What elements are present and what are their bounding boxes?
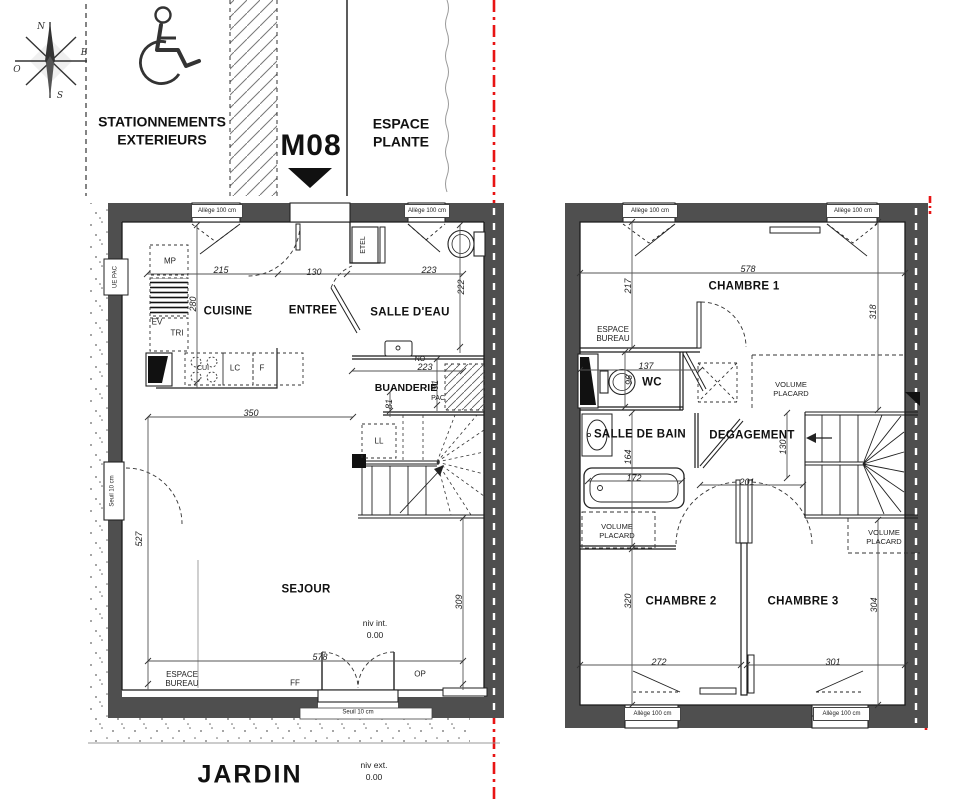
uf-allege-label-2: Allège 100 cm: [834, 208, 872, 214]
uf-window-tag-3: Allège 100 cm: [624, 707, 681, 721]
gf-dim-entree-width: 130: [306, 267, 321, 277]
uf-wc-door: [683, 352, 706, 391]
uf-duct: [578, 354, 598, 408]
gf-staircase: [352, 415, 484, 518]
exterior-level-value: 0.00: [366, 773, 383, 783]
room-label-chambre3: CHAMBRE 3: [767, 595, 838, 608]
compass-south-label: S: [57, 91, 63, 101]
gf-toilet: [448, 231, 485, 258]
hatched-strip: [230, 0, 277, 196]
parking-area-label: STATIONNEMENTS EXTERIEURS: [80, 114, 245, 149]
gf-allege-label-1: Allège 100 cm: [198, 208, 236, 214]
unit-pointer-triangle: [288, 168, 332, 188]
gf-dim-buanderie-width: 223: [417, 362, 432, 372]
compass-rose: [15, 22, 87, 98]
gf-label-etel: ETEL: [360, 236, 368, 254]
uf-sdb-door: [700, 419, 743, 468]
compass-east-label: E: [81, 48, 88, 58]
gf-washbasin: [385, 341, 412, 356]
gf-label-tri: TRI: [171, 328, 184, 337]
uf-dim-chambre2-width: 272: [651, 657, 666, 667]
uf-volume-placard-3: VOLUME PLACARD: [860, 528, 908, 546]
uf-dim-degagement-height: 130: [778, 439, 788, 454]
gf-label-ev: EV: [152, 317, 163, 326]
uf-volume-placard-2: VOLUME PLACARD: [593, 522, 641, 540]
uf-allege-label-1: Allège 100 cm: [631, 208, 669, 214]
gf-label-pac: PAC: [431, 395, 445, 403]
uf-chambre1-door: [697, 302, 746, 348]
uf-dim-wc-width: 137: [638, 361, 653, 371]
gf-dim-stair-door: 81: [384, 399, 394, 409]
gf-label-ue-pac: UE PAC: [113, 266, 120, 288]
gf-label-cui: CUI: [197, 365, 209, 373]
property-limit-red-line: [494, 0, 930, 800]
garden-label: JARDIN: [197, 761, 302, 790]
gf-dim-buanderie-height: 91: [430, 380, 440, 390]
ground-floor-plan: [88, 203, 504, 743]
gf-label-ll: LL: [375, 436, 384, 445]
gf-dim-salle-deau-height: 222: [456, 279, 466, 294]
gf-dim-sejour-height: 527: [134, 531, 144, 546]
uf-allege-label-4: Allège 100 cm: [822, 711, 860, 717]
gf-label-f: F: [260, 363, 265, 372]
uf-dim-chambre2-height: 320: [623, 593, 633, 608]
room-label-salle-deau: SALLE D'EAU: [370, 306, 450, 319]
gf-seuil-left-label: Seuil 10 cm: [110, 475, 117, 506]
room-label-entree: ENTREE: [289, 304, 337, 317]
uf-volume-placard-1: VOLUME PLACARD: [767, 380, 815, 398]
uf-window-tag-2: Allège 100 cm: [826, 204, 880, 218]
room-label-buanderie: BUANDERIE: [375, 382, 437, 394]
uf-espace-bureau-label: ESPACE BUREAU: [590, 325, 636, 343]
compass-west-label: O: [13, 65, 20, 75]
gf-dim-cuisine-height: 280: [188, 296, 198, 311]
gf-label-lc: LC: [230, 363, 240, 372]
gf-fixed-window-op: [443, 688, 487, 696]
uf-staircase: [805, 392, 920, 518]
site-wavy-line: [446, 0, 449, 192]
uf-dim-degagement-width: 201: [739, 477, 754, 487]
planted-area-label: ESPACE PLANTE: [356, 116, 446, 151]
room-label-wc: WC: [642, 376, 662, 389]
room-label-chambre2: CHAMBRE 2: [645, 595, 716, 608]
room-label-sejour: SEJOUR: [281, 583, 330, 596]
uf-window-tag-4: Allège 100 cm: [813, 707, 870, 721]
uf-window-tag-1: Allège 100 cm: [622, 204, 678, 218]
room-label-cuisine: CUISINE: [204, 305, 253, 318]
uf-window-casement-marks: [623, 224, 877, 692]
floor-plan-sheet: N E S O STATIONNEMENTS EXTERIEURS M08 ES…: [0, 0, 967, 800]
wheelchair-icon: [140, 8, 199, 84]
room-label-salle-de-bain: SALLE DE BAIN: [594, 428, 686, 441]
uf-allege-label-3: Allège 100 cm: [633, 711, 671, 717]
uf-dim-chambre3-width: 301: [825, 657, 840, 667]
gf-window-tag-1: Allège 100 cm: [191, 204, 243, 218]
compass-north-label: N: [37, 22, 45, 32]
interior-level-value: 0.00: [367, 631, 384, 641]
uf-dim-chambre1-width: 578: [740, 264, 755, 274]
exterior-level-label: niv ext.: [361, 761, 388, 771]
uf-dim-left-height: 217: [623, 278, 633, 293]
uf-attic-hatch: [698, 363, 737, 402]
gf-sink-unit: [146, 353, 172, 386]
uf-bedroom-doors: [676, 480, 812, 544]
gf-dim-sejour-width: 578: [312, 652, 327, 662]
gf-dim-mid-width: 350: [243, 408, 258, 418]
gf-window-casement-marks: [192, 224, 445, 254]
gf-espace-bureau-label: ESPACE BUREAU: [159, 670, 205, 688]
uf-central-wall: [741, 543, 747, 695]
gf-allege-label-2: Allège 100 cm: [408, 208, 446, 214]
gf-seuil-bottom-label: Seuil 10 cm: [342, 710, 373, 717]
uf-dim-wc-height: 96: [624, 375, 634, 385]
gf-dim-lines: [144, 222, 466, 690]
gf-dim-salle-deau-width: 223: [421, 265, 436, 275]
uf-dim-right-height: 318: [868, 304, 878, 319]
interior-level-label: niv int.: [363, 619, 388, 629]
uf-dim-bath-width: 172: [626, 473, 641, 483]
gf-label-mp: MP: [164, 256, 176, 265]
uf-radiators: [700, 227, 820, 694]
room-label-chambre1: CHAMBRE 1: [708, 280, 779, 293]
uf-dim-chambre3-height: 304: [869, 597, 879, 612]
gf-label-op: OP: [414, 669, 426, 678]
gf-label-ff: FF: [290, 678, 300, 687]
gf-dim-cuisine-width: 215: [213, 265, 228, 275]
uf-dim-sdb-height: 164: [623, 449, 633, 464]
gf-dim-sejour-right: 309: [454, 594, 464, 609]
unit-number-label: M08: [280, 129, 341, 164]
gf-window-tag-2: Allège 100 cm: [404, 204, 450, 218]
